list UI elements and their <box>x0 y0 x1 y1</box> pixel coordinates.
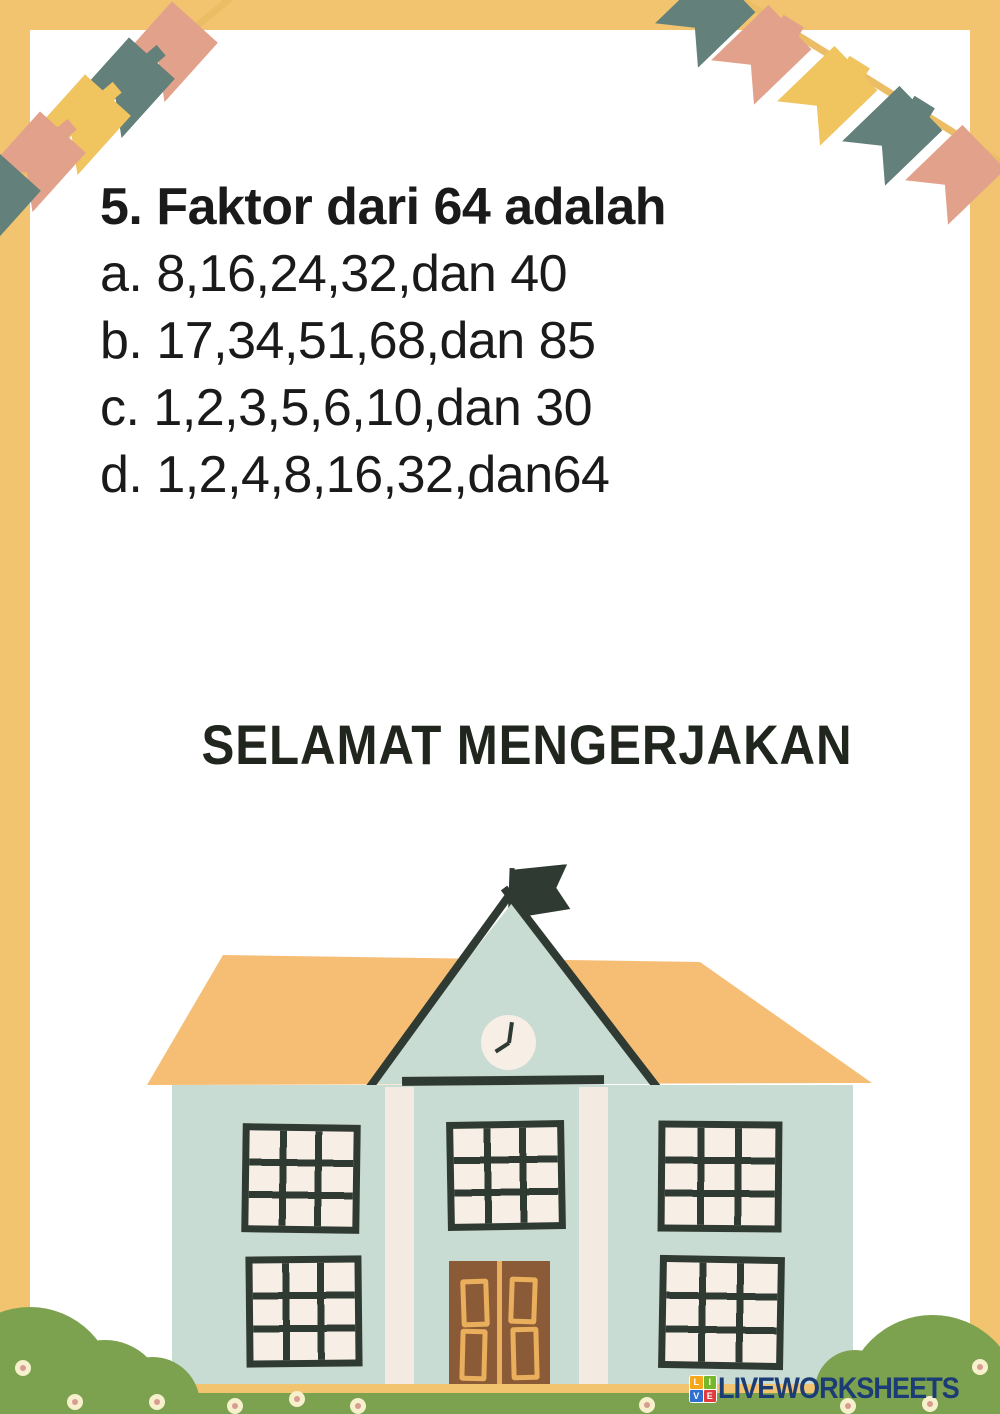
door-panel <box>460 1279 490 1328</box>
clock-minute-hand <box>507 1021 514 1042</box>
door-panel <box>510 1327 539 1381</box>
window <box>241 1123 361 1234</box>
logo-square-v: V <box>690 1390 703 1403</box>
school-illustration <box>0 0 1000 1414</box>
window <box>658 1255 785 1370</box>
pillar-right <box>579 1087 608 1393</box>
door-split-line <box>497 1261 502 1393</box>
liveworksheets-logo[interactable]: L I V E LIVEWORKSHEETS <box>689 1372 986 1406</box>
window <box>658 1120 783 1232</box>
liveworksheets-logo-text: LIVEWORKSHEETS <box>718 1372 959 1406</box>
liveworksheets-logo-icon: L I V E <box>689 1375 717 1403</box>
clock-hour-hand <box>494 1041 510 1053</box>
flower-icon <box>639 1397 655 1413</box>
logo-square-l: L <box>690 1376 703 1389</box>
logo-square-i: I <box>704 1376 717 1389</box>
worksheet-page: 5. Faktor dari 64 adalah a. 8,16,24,32,d… <box>0 0 1000 1414</box>
double-door <box>449 1261 550 1393</box>
flower-icon <box>15 1360 31 1376</box>
flower-icon <box>227 1398 243 1414</box>
logo-square-e: E <box>704 1390 717 1403</box>
door-panel <box>508 1277 538 1325</box>
flower-icon <box>149 1394 165 1410</box>
door-panel <box>459 1329 487 1382</box>
pillar-left <box>385 1087 414 1393</box>
flower-icon <box>289 1391 305 1407</box>
flower-icon <box>67 1394 83 1410</box>
clock-icon <box>481 1015 536 1070</box>
flower-icon <box>350 1398 366 1414</box>
window <box>245 1255 362 1367</box>
window <box>446 1120 566 1231</box>
gable-base-line <box>402 1075 604 1086</box>
